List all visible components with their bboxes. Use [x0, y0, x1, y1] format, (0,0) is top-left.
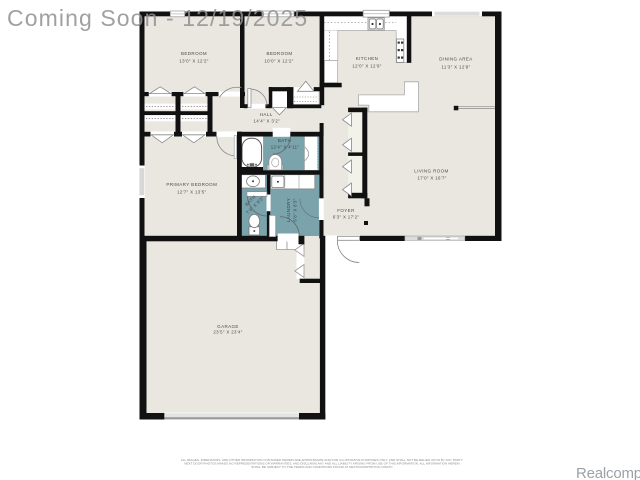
svg-text:17'0" X 16'7": 17'0" X 16'7" [417, 176, 446, 181]
svg-text:FOYER: FOYER [337, 208, 355, 213]
svg-text:Coming Soon - 12/19/2025: Coming Soon - 12/19/2025 [7, 5, 308, 31]
svg-text:KITCHEN: KITCHEN [356, 56, 379, 61]
svg-text:23'5" X 23'4": 23'5" X 23'4" [213, 330, 242, 335]
svg-text:6'8" X 8'3": 6'8" X 8'3" [293, 198, 298, 221]
svg-text:12'7" X 13'5": 12'7" X 13'5" [177, 190, 206, 195]
svg-text:Realcomp: Realcomp [576, 465, 640, 480]
svg-text:10'0" X 12'2": 10'0" X 12'2" [264, 59, 293, 64]
svg-text:12'4" X 4'11": 12'4" X 4'11" [271, 145, 300, 150]
svg-text:GARAGE: GARAGE [217, 324, 239, 329]
svg-text:LIVING ROOM: LIVING ROOM [414, 169, 448, 174]
svg-text:LAUNDRY: LAUNDRY [286, 198, 291, 222]
svg-text:BEDROOM: BEDROOM [181, 51, 207, 56]
svg-text:PRIMARY BEDROOM: PRIMARY BEDROOM [166, 182, 217, 187]
svg-text:6'3" X 17'2": 6'3" X 17'2" [333, 215, 360, 220]
svg-text:BATH: BATH [278, 138, 291, 143]
svg-text:DINING AREA: DINING AREA [439, 57, 472, 62]
svg-text:12'0" X 12'9": 12'0" X 12'9" [352, 63, 381, 68]
svg-text:HALL: HALL [260, 112, 273, 117]
svg-text:11'3" X 12'9": 11'3" X 12'9" [441, 64, 470, 69]
svg-text:14'4" X 3'2": 14'4" X 3'2" [254, 119, 281, 124]
svg-text:BEDROOM: BEDROOM [266, 51, 292, 56]
svg-text:13'0" X 12'2": 13'0" X 12'2" [179, 59, 208, 64]
svg-text:SHALL BE SUBJECT TO THE TERMS: SHALL BE SUBJECT TO THE TERMS AND CONDIT… [251, 465, 393, 469]
